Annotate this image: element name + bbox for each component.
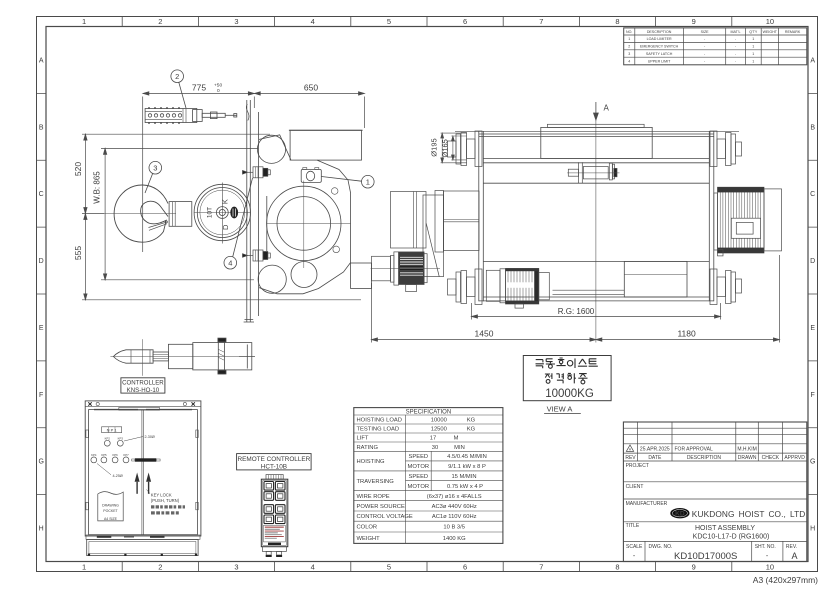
- svg-text:4-25Ø: 4-25Ø: [113, 474, 123, 478]
- svg-text:POWER SOURCE: POWER SOURCE: [357, 504, 405, 510]
- svg-text:WIRE ROPE: WIRE ROPE: [357, 494, 390, 500]
- svg-text:A3 (420x297mm): A3 (420x297mm): [753, 575, 818, 585]
- svg-text:REV: REV: [625, 455, 636, 461]
- svg-text:KNS-HO-10: KNS-HO-10: [127, 387, 160, 394]
- svg-text:F: F: [39, 392, 43, 399]
- svg-text:6: 6: [463, 17, 467, 26]
- svg-text:2: 2: [628, 45, 630, 49]
- svg-text:WEIGHT: WEIGHT: [763, 30, 778, 34]
- svg-text:MIN: MIN: [454, 445, 465, 451]
- svg-text:A: A: [791, 551, 797, 561]
- svg-text:K: K: [220, 199, 229, 204]
- svg-text:SIZE: SIZE: [701, 30, 710, 34]
- svg-text:9: 9: [692, 563, 696, 572]
- svg-text:(6x37) ø16 x 4FALLS: (6x37) ø16 x 4FALLS: [427, 494, 482, 500]
- svg-text:Q'TY: Q'TY: [749, 30, 758, 34]
- svg-text:CLIENT: CLIENT: [626, 484, 644, 490]
- svg-text:M: M: [454, 436, 459, 442]
- svg-text:4.5/0.45 M/MIN: 4.5/0.45 M/MIN: [447, 454, 487, 460]
- svg-text:A4 SIZE: A4 SIZE: [104, 517, 118, 521]
- svg-text:KP4: KP4: [91, 453, 97, 457]
- svg-text:HCT-10B: HCT-10B: [261, 464, 287, 471]
- svg-text:R.G: 1600: R.G: 1600: [558, 307, 595, 316]
- svg-text:2: 2: [158, 17, 162, 26]
- svg-text:10 B 3/5: 10 B 3/5: [443, 525, 465, 531]
- svg-text:REMARK: REMARK: [785, 30, 801, 34]
- svg-text:8: 8: [615, 17, 619, 26]
- svg-text:UPPER LIMIT: UPPER LIMIT: [648, 59, 671, 63]
- svg-text:1: 1: [82, 563, 86, 572]
- svg-text:E: E: [810, 325, 815, 332]
- svg-text:SPECIFICATION: SPECIFICATION: [406, 409, 452, 415]
- svg-text:MOTOR: MOTOR: [408, 484, 429, 490]
- svg-text:25.APR.2025: 25.APR.2025: [640, 446, 670, 452]
- svg-text:SCALE: SCALE: [626, 544, 643, 550]
- svg-text:KG: KG: [467, 427, 476, 433]
- svg-text:+50: +50: [214, 83, 222, 89]
- svg-text:KP7: KP7: [123, 453, 129, 457]
- svg-text:VIEW A: VIEW A: [547, 404, 573, 413]
- svg-text:HOISTING: HOISTING: [357, 459, 386, 465]
- svg-text:DATE: DATE: [648, 455, 662, 461]
- svg-text:3: 3: [153, 163, 157, 172]
- svg-text:KG: KG: [467, 418, 476, 424]
- svg-text:KP5: KP5: [101, 453, 107, 457]
- svg-text:4: 4: [311, 563, 315, 572]
- svg-text:REV.: REV.: [786, 544, 797, 550]
- svg-text:4: 4: [228, 258, 232, 267]
- svg-text:HOIST ASSEMBLY: HOIST ASSEMBLY: [695, 525, 755, 532]
- svg-text:APPRVD: APPRVD: [784, 455, 805, 461]
- svg-text:KDC10-L17-D (RG1600): KDC10-L17-D (RG1600): [693, 533, 770, 540]
- svg-text:DRAWING: DRAWING: [102, 504, 119, 508]
- svg-text:-: -: [766, 553, 769, 560]
- svg-text:1: 1: [752, 37, 754, 41]
- svg-text:520: 520: [73, 162, 83, 176]
- svg-text:8: 8: [615, 563, 619, 572]
- svg-text:AC3ø 440V 60Hz: AC3ø 440V 60Hz: [432, 504, 477, 510]
- svg-text:TESTING LOAD: TESTING LOAD: [357, 427, 400, 433]
- svg-text:17: 17: [430, 436, 436, 442]
- svg-text:KP3: KP3: [118, 436, 124, 440]
- svg-text:5: 5: [387, 17, 391, 26]
- svg-text:N P 1: N P 1: [107, 427, 118, 432]
- svg-text:D: D: [39, 258, 44, 265]
- svg-text:MAT'L: MAT'L: [730, 30, 740, 34]
- svg-text:4: 4: [311, 17, 315, 26]
- svg-text:PROJECT: PROJECT: [626, 463, 649, 469]
- svg-text:-: -: [735, 45, 737, 49]
- svg-text:NO.: NO.: [626, 30, 632, 34]
- svg-text:C: C: [810, 191, 815, 198]
- svg-text:HOISTING LOAD: HOISTING LOAD: [357, 418, 402, 424]
- svg-text:775: 775: [192, 82, 206, 92]
- svg-text:1450: 1450: [475, 328, 494, 338]
- svg-text:555: 555: [73, 246, 83, 260]
- svg-text:SHT. NO.: SHT. NO.: [755, 544, 776, 550]
- svg-text:H: H: [810, 526, 815, 533]
- svg-text:KP6: KP6: [112, 453, 118, 457]
- svg-text:B: B: [39, 124, 44, 131]
- svg-text:1: 1: [366, 177, 370, 186]
- svg-text:MANUFACTURER: MANUFACTURER: [626, 501, 668, 507]
- svg-text:AC1ø 110V 60Hz: AC1ø 110V 60Hz: [432, 514, 477, 520]
- svg-text:SAFETY LATCH: SAFETY LATCH: [646, 52, 673, 56]
- svg-text:-: -: [704, 52, 706, 56]
- svg-text:Ø165: Ø165: [441, 139, 450, 157]
- svg-text:D: D: [221, 224, 230, 230]
- svg-text:-: -: [704, 45, 706, 49]
- svg-text:F: F: [811, 392, 815, 399]
- svg-text:EMERGENCY SWITCH: EMERGENCY SWITCH: [640, 45, 679, 49]
- svg-text:LIFT: LIFT: [357, 436, 369, 442]
- svg-text:WEIGHT: WEIGHT: [357, 536, 381, 542]
- svg-text:SPEED: SPEED: [408, 454, 428, 460]
- svg-text:1: 1: [82, 17, 86, 26]
- svg-text:SPEED: SPEED: [408, 474, 428, 480]
- svg-text:10: 10: [766, 563, 774, 572]
- svg-text:650: 650: [304, 82, 318, 92]
- svg-text:C: C: [39, 191, 44, 198]
- svg-text:12500: 12500: [431, 427, 447, 433]
- svg-text:15 M/MIN: 15 M/MIN: [451, 474, 476, 480]
- svg-text:3: 3: [234, 563, 238, 572]
- svg-text:COLOR: COLOR: [357, 525, 378, 531]
- svg-text:E: E: [39, 325, 44, 332]
- svg-text:6: 6: [463, 563, 467, 572]
- svg-text:G: G: [38, 459, 43, 466]
- svg-text:CONTROL VOLTAGE: CONTROL VOLTAGE: [357, 514, 413, 520]
- svg-text:2-30Ø: 2-30Ø: [145, 435, 155, 439]
- svg-text:10: 10: [766, 17, 774, 26]
- svg-text:CONTROLLER: CONTROLLER: [122, 380, 164, 387]
- svg-text:1: 1: [752, 52, 754, 56]
- svg-text:0: 0: [217, 88, 220, 94]
- svg-text:3: 3: [628, 52, 630, 56]
- svg-text:TRAVERSING: TRAVERSING: [357, 479, 395, 485]
- svg-text:-: -: [735, 59, 737, 63]
- svg-text:10000: 10000: [431, 418, 447, 424]
- svg-text:(PUSH, TURN): (PUSH, TURN): [151, 498, 180, 503]
- svg-text:DRAWN: DRAWN: [738, 455, 757, 461]
- svg-text:W.B: 865: W.B: 865: [93, 171, 102, 204]
- svg-text:KD: KD: [675, 511, 685, 518]
- svg-text:A: A: [604, 104, 610, 113]
- svg-text:CHECK: CHECK: [762, 455, 780, 461]
- svg-text:7: 7: [539, 563, 543, 572]
- svg-text:FOR APPROVAL: FOR APPROVAL: [675, 446, 713, 452]
- svg-text:POCKET: POCKET: [103, 509, 118, 513]
- svg-text:2: 2: [175, 72, 179, 81]
- svg-text:Ø195: Ø195: [430, 138, 439, 156]
- svg-text:5: 5: [387, 563, 391, 572]
- svg-text:1: 1: [752, 59, 754, 63]
- svg-text:1: 1: [628, 37, 630, 41]
- svg-text:B: B: [810, 124, 815, 131]
- svg-text:KD10D17000S: KD10D17000S: [674, 551, 737, 562]
- svg-text:D: D: [810, 258, 815, 265]
- svg-text:-: -: [704, 37, 706, 41]
- svg-text:KP2: KP2: [105, 436, 111, 440]
- svg-text:9/1.1 kW x 8 P: 9/1.1 kW x 8 P: [448, 464, 486, 470]
- svg-text:REMOTE CONTROLLER: REMOTE CONTROLLER: [238, 456, 311, 463]
- svg-text:10T: 10T: [207, 207, 214, 218]
- svg-text:7: 7: [539, 17, 543, 26]
- svg-text:TITLE: TITLE: [626, 523, 640, 529]
- svg-text:4: 4: [628, 59, 630, 63]
- svg-text:LOAD LIMITER: LOAD LIMITER: [647, 37, 672, 41]
- svg-text:9: 9: [692, 17, 696, 26]
- svg-text:KUKDONG HOIST CO., LTD: KUKDONG HOIST CO., LTD: [692, 509, 806, 519]
- svg-text:G: G: [810, 459, 815, 466]
- svg-text:-: -: [735, 37, 737, 41]
- svg-text:DWG. NO.: DWG. NO.: [649, 544, 673, 550]
- svg-text:30: 30: [432, 445, 438, 451]
- svg-text:0.75 kW x 4 P: 0.75 kW x 4 P: [447, 484, 483, 490]
- svg-text:KEY LOCK: KEY LOCK: [151, 493, 172, 498]
- svg-text:1180: 1180: [677, 328, 696, 338]
- svg-text:2: 2: [158, 563, 162, 572]
- svg-text:-: -: [633, 553, 636, 560]
- svg-text:MOTOR: MOTOR: [408, 464, 429, 470]
- svg-text:3: 3: [234, 17, 238, 26]
- svg-text:-: -: [735, 52, 737, 56]
- svg-text:-: -: [704, 59, 706, 63]
- svg-text:1400 KG: 1400 KG: [443, 536, 466, 542]
- svg-text:RATING: RATING: [357, 445, 379, 451]
- svg-text:A: A: [810, 57, 815, 64]
- svg-text:DESCRIPTION: DESCRIPTION: [687, 455, 722, 461]
- svg-text:DESCRIPTION: DESCRIPTION: [647, 30, 672, 34]
- svg-text:M.H.KIM: M.H.KIM: [737, 446, 756, 452]
- svg-text:1: 1: [752, 45, 754, 49]
- svg-text:H: H: [39, 526, 44, 533]
- svg-text:10000KG: 10000KG: [545, 388, 594, 400]
- svg-text:A: A: [39, 57, 44, 64]
